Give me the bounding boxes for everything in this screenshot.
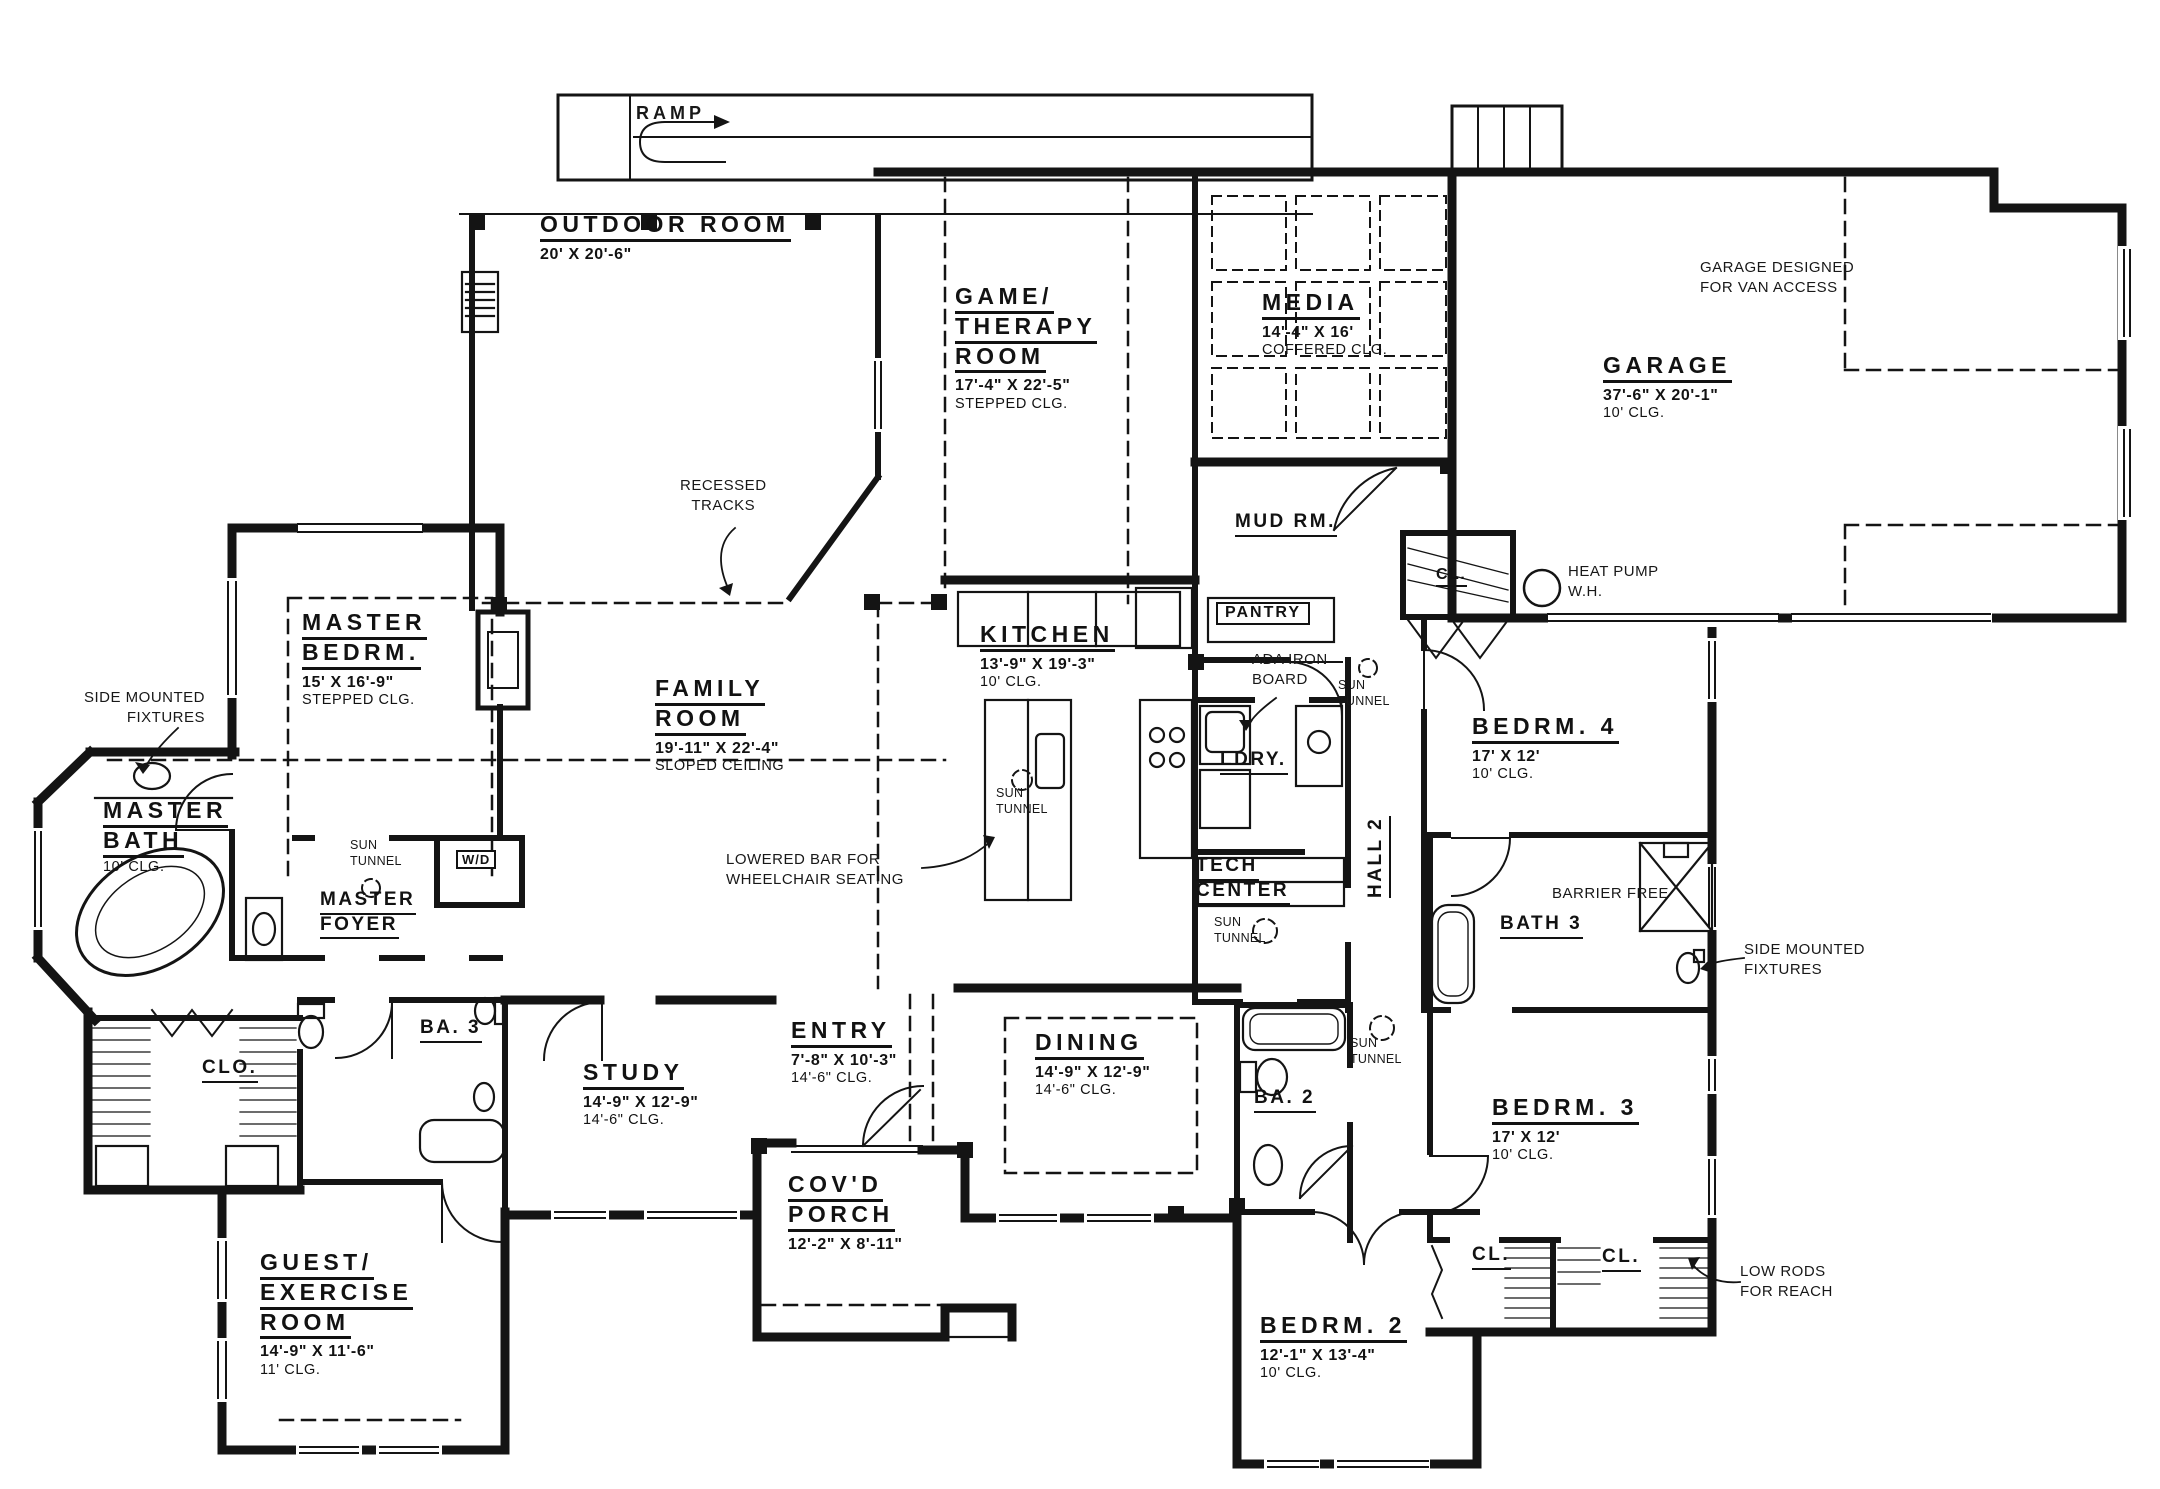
- note-text: SUN: [1338, 678, 1390, 694]
- room-dims: 13'-9" X 19'-3": [980, 656, 1115, 673]
- room-name-line: PORCH: [788, 1202, 895, 1232]
- note-text: FOR REACH: [1740, 1282, 1833, 1302]
- note-text: LOW RODS: [1740, 1262, 1833, 1282]
- low-rods-note: LOW RODS FOR REACH: [1740, 1262, 1833, 1301]
- ramp-arrow: [640, 122, 725, 162]
- room-label-guest-exercise: GUEST/ EXERCISE ROOM 14'-9" X 11'-6" 11'…: [260, 1250, 413, 1378]
- room-name-line: COV'D: [788, 1172, 883, 1202]
- room-name-line: BA. 3: [420, 1018, 482, 1043]
- recessed-tracks-note: RECESSED TRACKS: [680, 476, 767, 515]
- room-name-line: ENTRY: [791, 1018, 892, 1048]
- room-dims: 20' X 20'-6": [540, 246, 791, 263]
- room-ceiling: 10' CLG.: [1472, 767, 1619, 783]
- note-text: SUN: [350, 838, 402, 854]
- room-ceiling: 10' CLG.: [103, 860, 228, 876]
- room-label-study: STUDY 14'-9" X 12'-9" 14'-6" CLG.: [583, 1060, 698, 1129]
- heat-pump-note: HEAT PUMP W.H.: [1568, 562, 1659, 601]
- room-ceiling: 11' CLG.: [260, 1363, 413, 1379]
- garage-stair-steps: [1478, 106, 1530, 172]
- room-label-master-bedrm: MASTER BEDRM. 15' X 16'-9" STEPPED CLG.: [302, 610, 427, 709]
- room-dims: 12'-1" X 13'-4": [1260, 1347, 1407, 1364]
- room-name-line: HALL 2: [1366, 816, 1391, 898]
- room-label-bath-3: BATH 3: [1500, 914, 1583, 939]
- room-label-hall-2: HALL 2: [1366, 816, 1391, 898]
- fireplace: [478, 612, 528, 708]
- room-dims: 37'-6" X 20'-1": [1603, 387, 1732, 404]
- room-label-clo: CLO.: [202, 1058, 258, 1083]
- room-name-line: CLO.: [202, 1058, 258, 1083]
- room-dims: 12'-2" X 8'-11": [788, 1236, 903, 1253]
- firebox: [488, 632, 518, 688]
- room-ceiling: SLOPED CEILING: [655, 759, 784, 775]
- note-text: TUNNEL: [350, 854, 402, 870]
- note-text: RECESSED: [680, 476, 767, 496]
- room-name-line: CL.: [1472, 1245, 1511, 1270]
- room-name-line: LDRY.: [1220, 750, 1288, 775]
- room-label-cl-right: CL.: [1602, 1247, 1641, 1272]
- room-dims: 14'-9" X 11'-6": [260, 1343, 413, 1360]
- note-text: TUNNEL: [996, 802, 1048, 818]
- room-name-line: BEDRM. 4: [1472, 714, 1619, 744]
- room-name-line: KITCHEN: [980, 622, 1115, 652]
- note-text: FOR VAN ACCESS: [1700, 278, 1854, 298]
- note-text: SUN: [1214, 915, 1266, 931]
- room-label-master-foyer: MASTER FOYER: [320, 890, 416, 939]
- washer-dryer-label: W/D: [456, 850, 496, 869]
- note-text: TUNNEL: [1214, 931, 1266, 947]
- ada-iron-board-note: ADA IRON BOARD: [1252, 650, 1328, 689]
- note-text: PANTRY: [1225, 604, 1301, 621]
- room-name-line: ROOM: [655, 706, 746, 736]
- interior-walls: [95, 172, 1712, 1328]
- note-text: LOWERED BAR FOR: [726, 850, 904, 870]
- note-text: WHEELCHAIR SEATING: [726, 870, 904, 890]
- sun-tunnel-label: SUN TUNNEL: [350, 838, 402, 869]
- room-label-master-bath: MASTER BATH 10' CLG.: [103, 798, 228, 875]
- room-name-line: MASTER: [320, 890, 416, 915]
- room-ceiling: STEPPED CLG.: [302, 693, 427, 709]
- note-text: SUN: [1350, 1036, 1402, 1052]
- room-dims: 17' X 12': [1472, 748, 1619, 765]
- room-label-outdoor-room: OUTDOOR ROOM 20' X 20'-6": [540, 212, 791, 263]
- note-text: TRACKS: [680, 496, 767, 516]
- note-text: SIDE MOUNTED: [1744, 940, 1865, 960]
- room-label-ba-2: BA. 2: [1254, 1088, 1316, 1113]
- note-text: BOARD: [1252, 670, 1328, 690]
- garage-stair: [1452, 106, 1562, 172]
- sun-tunnel-label: SUN TUNNEL: [996, 786, 1048, 817]
- room-label-media: MEDIA 14'-4" X 16' COFFERED CLG.: [1262, 290, 1387, 359]
- room-name-line: ROOM: [260, 1310, 351, 1340]
- room-name-line: EXERCISE: [260, 1280, 413, 1310]
- room-ceiling: COFFERED CLG.: [1262, 343, 1387, 359]
- room-name-line: STUDY: [583, 1060, 684, 1090]
- room-label-ba-3: BA. 3: [420, 1018, 482, 1043]
- room-name-line: BEDRM. 3: [1492, 1095, 1639, 1125]
- note-text: FIXTURES: [1744, 960, 1865, 980]
- note-text: SIDE MOUNTED: [84, 688, 205, 708]
- sun-tunnel-label: SUN TUNNEL: [1214, 915, 1266, 946]
- room-name-line: MASTER: [103, 798, 228, 828]
- room-ceiling: 10' CLG.: [1603, 406, 1732, 422]
- room-name-line: CL.: [1436, 566, 1467, 587]
- room-label-covd-porch: COV'D PORCH 12'-2" X 8'-11": [788, 1172, 903, 1253]
- room-name-line: BA. 2: [1254, 1088, 1316, 1113]
- room-name-line: THERAPY: [955, 314, 1097, 344]
- note-text: GARAGE DESIGNED: [1700, 258, 1854, 278]
- room-name-line: GAME/: [955, 284, 1054, 314]
- room-ceiling: 14'-6" CLG.: [791, 1071, 897, 1087]
- room-name-line: FAMILY: [655, 676, 765, 706]
- sun-tunnel-label: SUN TUNNEL: [1338, 678, 1390, 709]
- barrier-free-note: BARRIER FREE: [1552, 884, 1669, 904]
- room-label-game-therapy: GAME/ THERAPY ROOM 17'-4" X 22'-5" STEPP…: [955, 284, 1097, 412]
- outdoor-room-walls: [472, 218, 878, 608]
- room-label-mud-rm: MUD RM.: [1235, 512, 1337, 537]
- room-label-garage: GARAGE 37'-6" X 20'-1" 10' CLG.: [1603, 353, 1732, 422]
- note-text: W.H.: [1568, 582, 1659, 602]
- room-name-line: CENTER: [1196, 881, 1290, 906]
- note-text: SUN: [996, 786, 1048, 802]
- room-label-bedrm-3: BEDRM. 3 17' X 12' 10' CLG.: [1492, 1095, 1639, 1164]
- room-ceiling: 10' CLG.: [1492, 1148, 1639, 1164]
- room-ceiling: 10' CLG.: [1260, 1366, 1407, 1382]
- room-name-line: TECH: [1196, 856, 1259, 881]
- room-dims: 17' X 12': [1492, 1129, 1639, 1146]
- room-name-line: MUD RM.: [1235, 512, 1337, 537]
- pantry-label: PANTRY: [1216, 602, 1310, 625]
- room-name-line: OUTDOOR ROOM: [540, 212, 791, 242]
- room-dims: 17'-4" X 22'-5": [955, 377, 1097, 394]
- room-label-ldry: LDRY.: [1220, 750, 1288, 775]
- room-label-kitchen: KITCHEN 13'-9" X 19'-3" 10' CLG.: [980, 622, 1115, 691]
- room-ceiling: 14'-6" CLG.: [1035, 1083, 1150, 1099]
- room-dims: 19'-11" X 22'-4": [655, 740, 784, 757]
- ramp-note: RAMP: [636, 102, 705, 125]
- lowered-bar-note: LOWERED BAR FOR WHEELCHAIR SEATING: [726, 850, 904, 889]
- ramp-arrowhead: [714, 115, 730, 129]
- room-label-cl-water-heater: CL.: [1436, 566, 1467, 587]
- room-name-line: BEDRM. 2: [1260, 1313, 1407, 1343]
- ramp-tracks: [460, 95, 1312, 214]
- sun-tunnel-label: SUN TUNNEL: [1350, 1036, 1402, 1067]
- room-dims: 14'-9" X 12'-9": [583, 1094, 698, 1111]
- room-label-bedrm-2: BEDRM. 2 12'-1" X 13'-4" 10' CLG.: [1260, 1313, 1407, 1382]
- room-name-line: GUEST/: [260, 1250, 374, 1280]
- room-name-line: BATH 3: [1500, 914, 1583, 939]
- room-name-line: BATH: [103, 828, 184, 858]
- note-text: ADA IRON: [1252, 650, 1328, 670]
- note-text: W/D: [462, 852, 490, 867]
- side-mounted-note-right: SIDE MOUNTED FIXTURES: [1744, 940, 1865, 979]
- note-text: FIXTURES: [84, 708, 205, 728]
- room-label-tech-center: TECH CENTER: [1196, 856, 1290, 905]
- room-dims: 15' X 16'-9": [302, 674, 427, 691]
- dashed-ceiling-lines: [108, 178, 2118, 1420]
- room-name-line: ROOM: [955, 344, 1046, 374]
- note-text: RAMP: [636, 103, 705, 123]
- room-ceiling: 10' CLG.: [980, 675, 1115, 691]
- room-label-entry: ENTRY 7'-8" X 10'-3" 14'-6" CLG.: [791, 1018, 897, 1087]
- note-text: TUNNEL: [1338, 694, 1390, 710]
- room-ceiling: STEPPED CLG.: [955, 397, 1097, 413]
- room-label-bedrm-4: BEDRM. 4 17' X 12' 10' CLG.: [1472, 714, 1619, 783]
- floor-plan-canvas: OUTDOOR ROOM 20' X 20'-6" GAME/ THERAPY …: [0, 0, 2160, 1489]
- room-ceiling: 14'-6" CLG.: [583, 1113, 698, 1129]
- note-text: TUNNEL: [1350, 1052, 1402, 1068]
- note-text: BARRIER FREE: [1552, 885, 1669, 902]
- room-dims: 14'-9" X 12'-9": [1035, 1064, 1150, 1081]
- room-name-line: MASTER: [302, 610, 427, 640]
- room-name-line: DINING: [1035, 1030, 1144, 1060]
- room-dims: 7'-8" X 10'-3": [791, 1052, 897, 1069]
- room-name-line: MEDIA: [1262, 290, 1360, 320]
- side-mounted-note-left: SIDE MOUNTED FIXTURES: [84, 688, 205, 727]
- room-label-dining: DINING 14'-9" X 12'-9" 14'-6" CLG.: [1035, 1030, 1150, 1099]
- room-name-line: CL.: [1602, 1247, 1641, 1272]
- room-label-cl-left: CL.: [1472, 1245, 1511, 1270]
- room-name-line: GARAGE: [1603, 353, 1732, 383]
- room-name-line: FOYER: [320, 915, 399, 940]
- room-label-family-room: FAMILY ROOM 19'-11" X 22'-4" SLOPED CEIL…: [655, 676, 784, 775]
- room-name-line: BEDRM.: [302, 640, 421, 670]
- casework: [96, 272, 1344, 1337]
- room-dims: 14'-4" X 16': [1262, 324, 1387, 341]
- garage-van-note: GARAGE DESIGNED FOR VAN ACCESS: [1700, 258, 1854, 297]
- note-text: HEAT PUMP: [1568, 562, 1659, 582]
